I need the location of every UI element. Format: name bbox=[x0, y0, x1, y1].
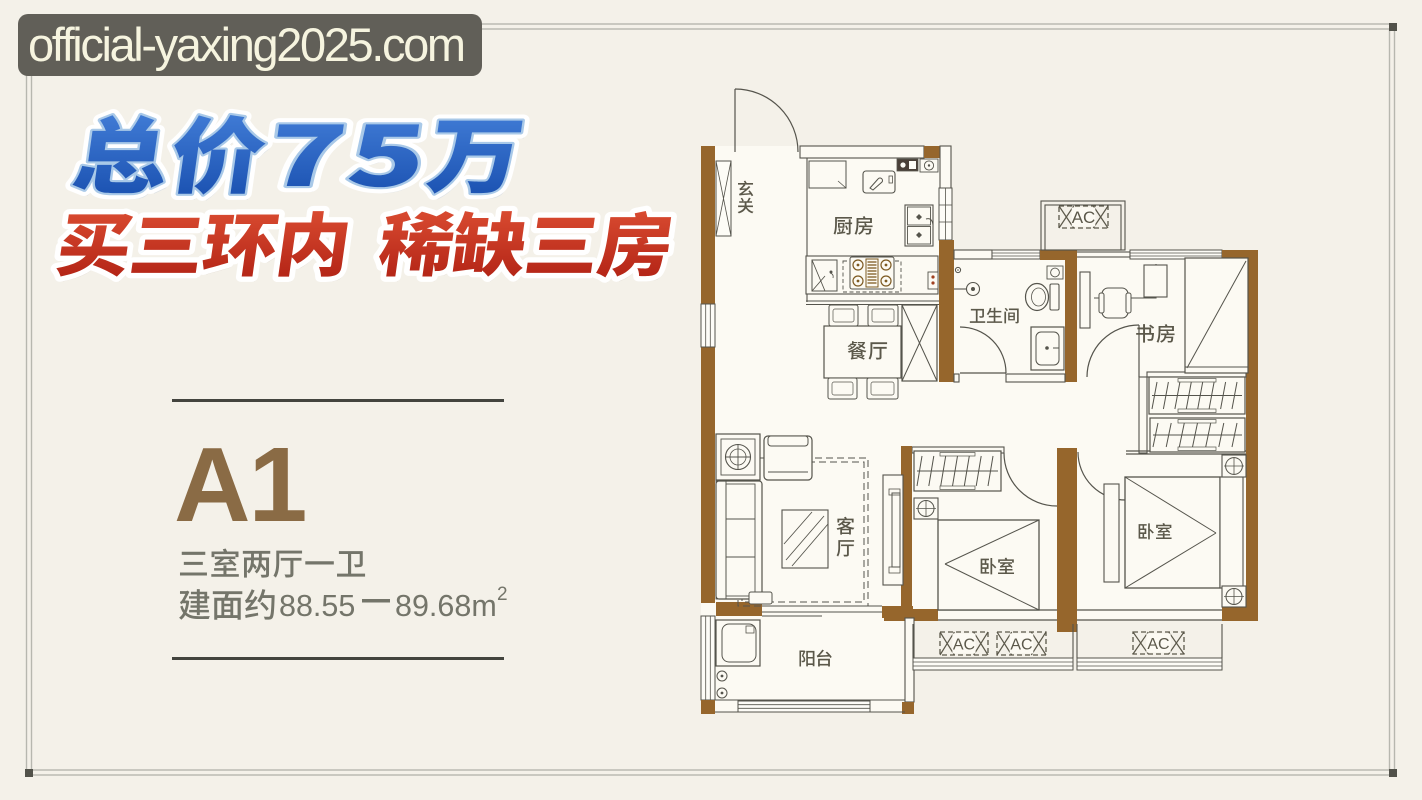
svg-text:AC: AC bbox=[953, 636, 975, 653]
svg-text:AC: AC bbox=[1072, 208, 1096, 227]
svg-text:A1: A1 bbox=[174, 426, 306, 544]
svg-text:official-yaxing2025.com: official-yaxing2025.com bbox=[28, 18, 466, 71]
svg-text:89.68m: 89.68m bbox=[395, 589, 497, 623]
svg-text:AC: AC bbox=[1147, 636, 1169, 653]
svg-text:AC: AC bbox=[1010, 636, 1032, 653]
svg-text:2: 2 bbox=[497, 584, 508, 605]
svg-text:88.55: 88.55 bbox=[279, 589, 355, 623]
